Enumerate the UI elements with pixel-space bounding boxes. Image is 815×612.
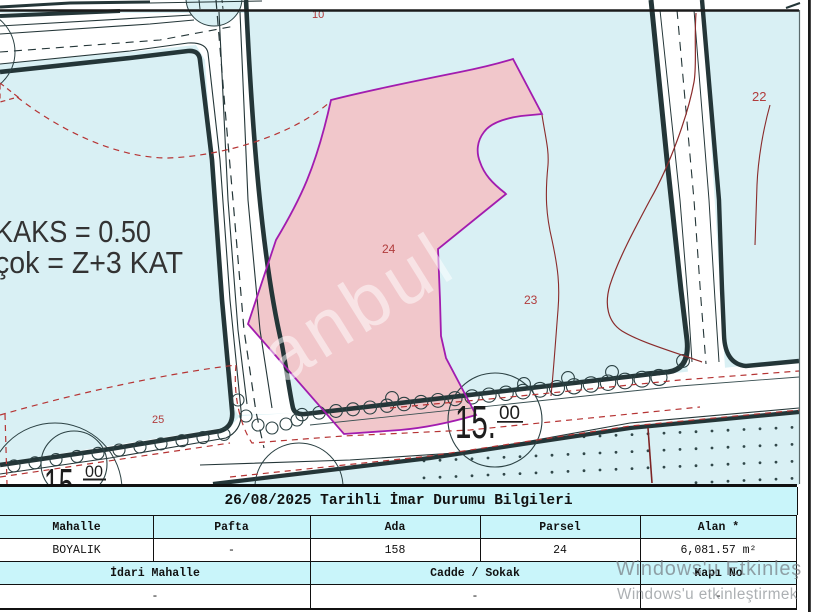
svg-text:00: 00 (85, 462, 103, 481)
svg-text:23: 23 (524, 293, 538, 307)
svg-text:KAKS = 0.50: KAKS = 0.50 (0, 214, 151, 249)
svg-text:22: 22 (752, 89, 766, 104)
svg-text:15.: 15. (455, 396, 496, 448)
svg-text:25: 25 (152, 414, 164, 426)
svg-text:24: 24 (382, 242, 396, 256)
svg-text:çok = Z+3 KAT: çok = Z+3 KAT (0, 245, 183, 280)
svg-text:00: 00 (499, 403, 520, 424)
